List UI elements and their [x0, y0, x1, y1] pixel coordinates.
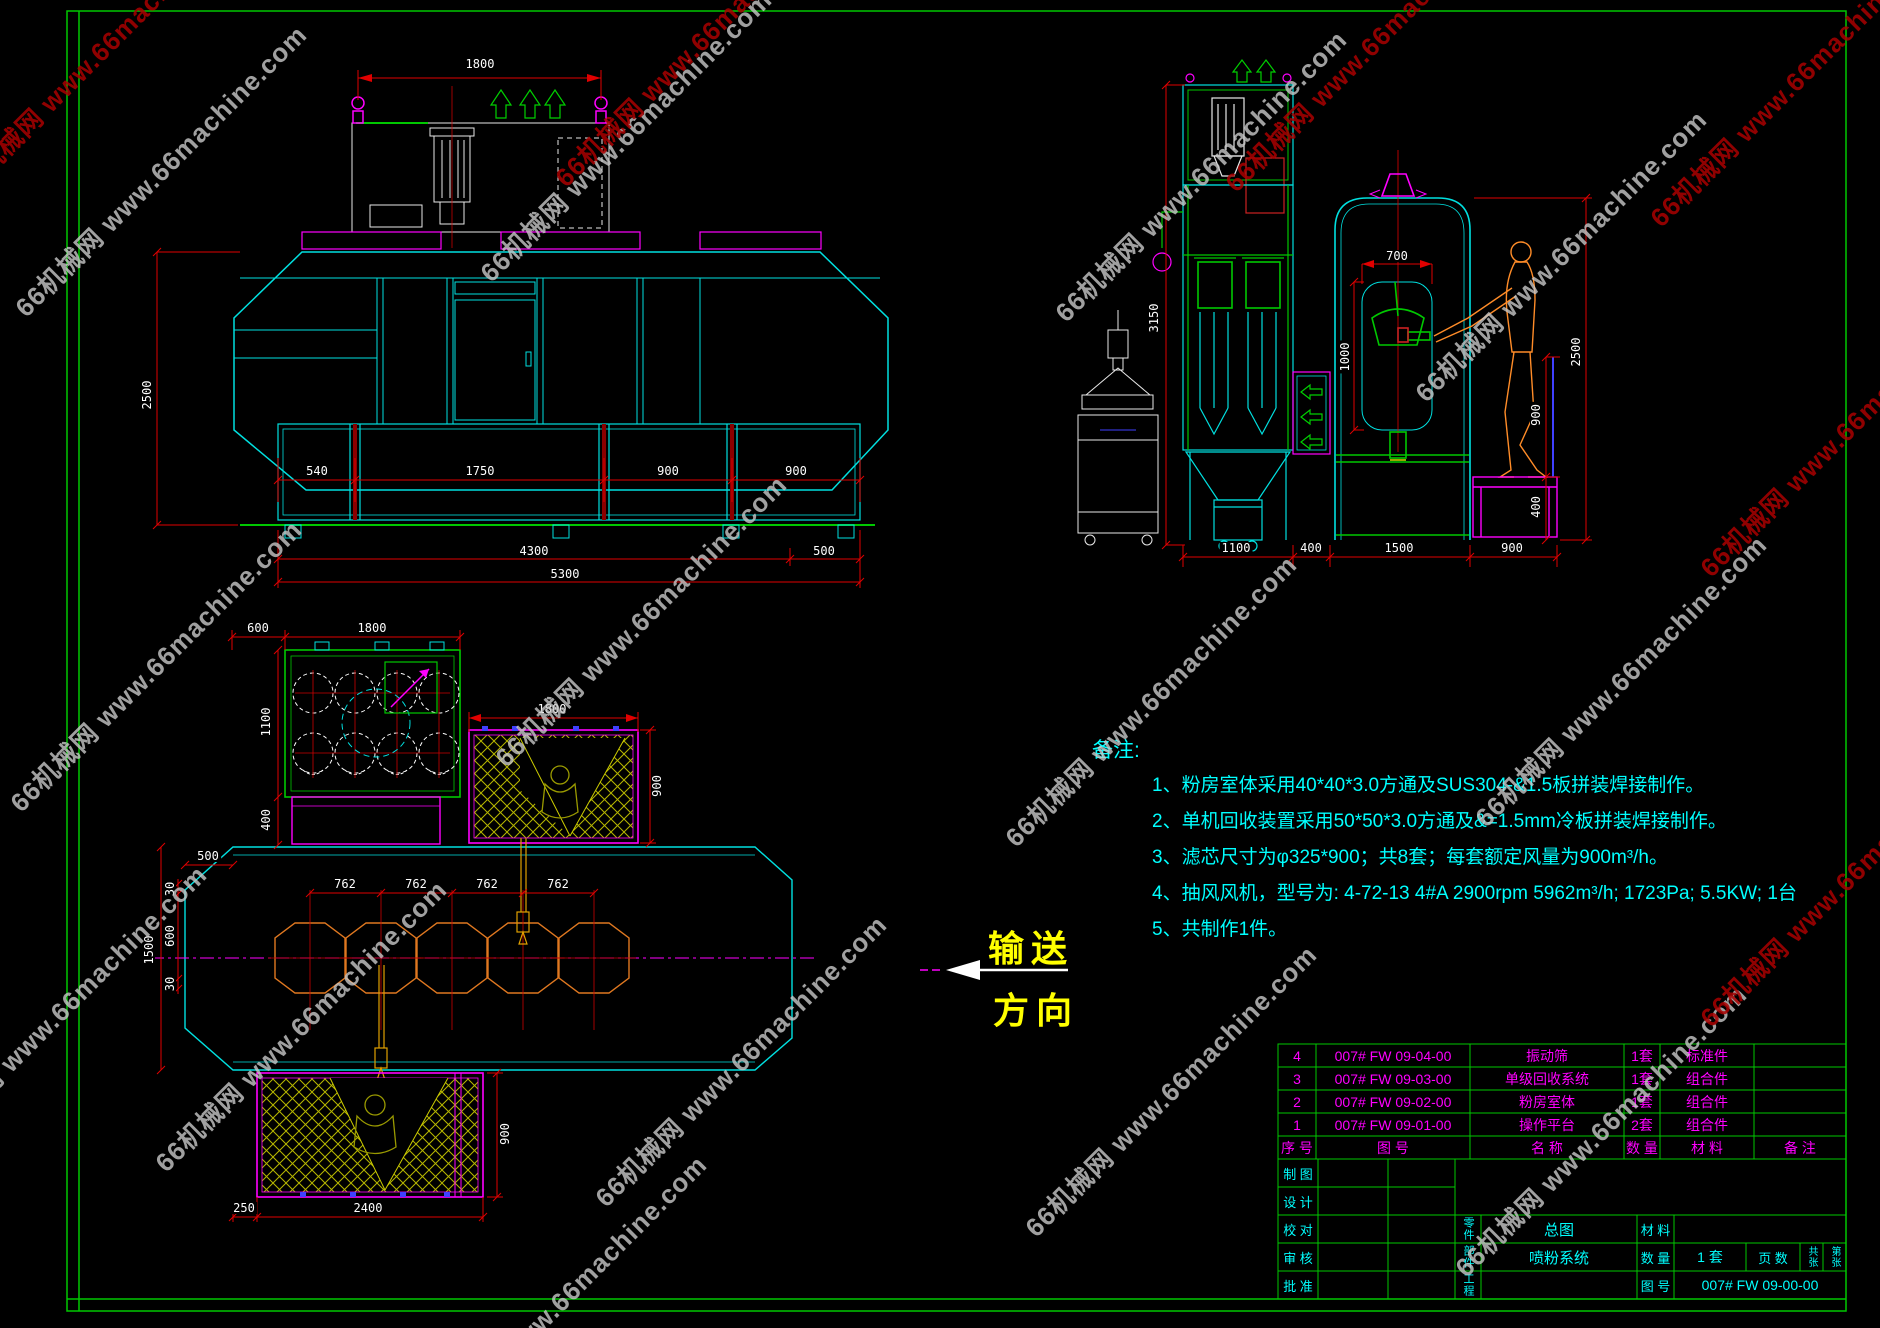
dimension-label: 900 [1499, 542, 1525, 554]
plan-view [150, 630, 1068, 1222]
dimension-label: 250 [231, 1202, 257, 1214]
sign-label: 设 计 [1278, 1187, 1318, 1215]
dimension-label: 900 [783, 465, 809, 477]
dimension-label: 762 [332, 878, 358, 890]
conveying-direction-label-bottom: 方向 [993, 982, 1079, 1034]
sign-label: 制 图 [1278, 1159, 1318, 1187]
dimension-label: 400 [1298, 542, 1324, 554]
lifting-ring-icons [352, 97, 607, 123]
cad-drawing-sheet: 1800250054017509009004300500530031507001… [0, 0, 1880, 1328]
airflow-up-arrows [491, 90, 565, 118]
bom-cell: 组合件 [1660, 1113, 1754, 1136]
dimension-label: 1750 [464, 465, 497, 477]
material-label: 材 料 [1637, 1215, 1674, 1243]
sheet-number-cell: 第张 [1823, 1243, 1846, 1271]
sign-label: 校 对 [1278, 1215, 1318, 1243]
dimension-label: 540 [304, 465, 330, 477]
dimension-label: 1500 [1383, 542, 1416, 554]
bom-cell: 1 [1278, 1113, 1316, 1136]
bom-cell [1754, 1090, 1846, 1113]
pages-label: 页 数 [1746, 1243, 1800, 1271]
bom-cell [1754, 1113, 1846, 1136]
bom-cell: 组合件 [1660, 1090, 1754, 1113]
dimension-label: 1100 [260, 706, 272, 739]
bom-cell [1754, 1067, 1846, 1090]
dimension-label: 762 [545, 878, 571, 890]
bom-header-cell: 材 料 [1660, 1136, 1754, 1159]
dimension-label: 2400 [352, 1202, 385, 1214]
platform-plan-hatched [257, 1073, 483, 1197]
drawing-no-label: 图 号 [1637, 1271, 1674, 1299]
bom-cell: 007# FW 09-02-00 [1316, 1090, 1470, 1113]
bom-cell: 单级回收系统 [1470, 1067, 1624, 1090]
dimension-label: 2500 [141, 379, 153, 412]
note-item: 3、滤芯尺寸为φ325*900；共8套；每套额定风量为900m³/h。 [1152, 840, 1797, 876]
dimension-label: 5300 [549, 568, 582, 580]
suction-duct [1293, 372, 1330, 454]
bom-header-cell: 序 号 [1278, 1136, 1316, 1159]
booth-door [455, 300, 535, 420]
recovery-unit-plan [285, 642, 460, 797]
bom-header-cell: 图 号 [1316, 1136, 1470, 1159]
quantity-label: 数 量 [1637, 1243, 1674, 1271]
vibrating-sieve [1078, 310, 1158, 545]
drawing-no-value: 007# FW 09-00-00 [1674, 1271, 1846, 1299]
bom-cell: 007# FW 09-01-00 [1316, 1113, 1470, 1136]
sign-label: 批 准 [1278, 1271, 1318, 1299]
dimension-label: 4300 [518, 545, 551, 557]
dimension-label: 900 [1530, 402, 1542, 428]
dimension-label: 900 [655, 465, 681, 477]
dimension-label: 30 [164, 975, 176, 993]
sheets-total-cell: 共张 [1800, 1243, 1823, 1271]
dimension-label: 1800 [356, 622, 389, 634]
recovery-skirt-plan [292, 797, 440, 844]
dimension-label: 500 [811, 545, 837, 557]
operator-platform [1473, 357, 1557, 537]
dimension-label: 400 [1530, 494, 1542, 520]
dimension-label: 1800 [464, 58, 497, 70]
dimension-label: 3150 [1148, 302, 1160, 335]
booth-body-outline [234, 252, 888, 490]
bom-cell: 3 [1278, 1067, 1316, 1090]
note-item: 5、共制作1件。 [1152, 912, 1797, 948]
dimension-label: 1000 [1339, 341, 1351, 374]
bom-header-cell: 备 注 [1754, 1136, 1846, 1159]
conveying-direction-label-top: 输送 [988, 920, 1074, 972]
note-item: 4、抽风风机，型号为: 4-72-13 4#A 2900rpm 5962m³/h… [1152, 876, 1797, 912]
bom-cell: 007# FW 09-03-00 [1316, 1067, 1470, 1090]
booth-feet [285, 525, 854, 538]
dimension-label: 900 [499, 1121, 511, 1147]
bom-cell [1754, 1044, 1846, 1067]
dimension-label: 2500 [1570, 336, 1582, 369]
dimension-label: 400 [260, 807, 272, 833]
bom-header-cell: 数 量 [1624, 1136, 1660, 1159]
bom-cell: 振动筛 [1470, 1044, 1624, 1067]
roof-filter-strips [302, 232, 821, 249]
dimension-label: 762 [474, 878, 500, 890]
bom-cell: 4 [1278, 1044, 1316, 1067]
bom-cell: 2 [1278, 1090, 1316, 1113]
dimension-label: 500 [195, 850, 221, 862]
dimension-label: 900 [651, 773, 663, 799]
bom-cell: 007# FW 09-04-00 [1316, 1044, 1470, 1067]
dimension-label: 700 [1384, 250, 1410, 262]
quantity-value: 1 套 [1674, 1243, 1746, 1271]
front-elevation-view [153, 70, 888, 588]
notes-list: 1、粉房室体采用40*40*3.0方通及SUS304-&1.5板拼装焊接制作。2… [1152, 768, 1797, 948]
dimension-label: 600 [245, 622, 271, 634]
dimension-label: 1100 [1220, 542, 1253, 554]
sign-label: 审 核 [1278, 1243, 1318, 1271]
